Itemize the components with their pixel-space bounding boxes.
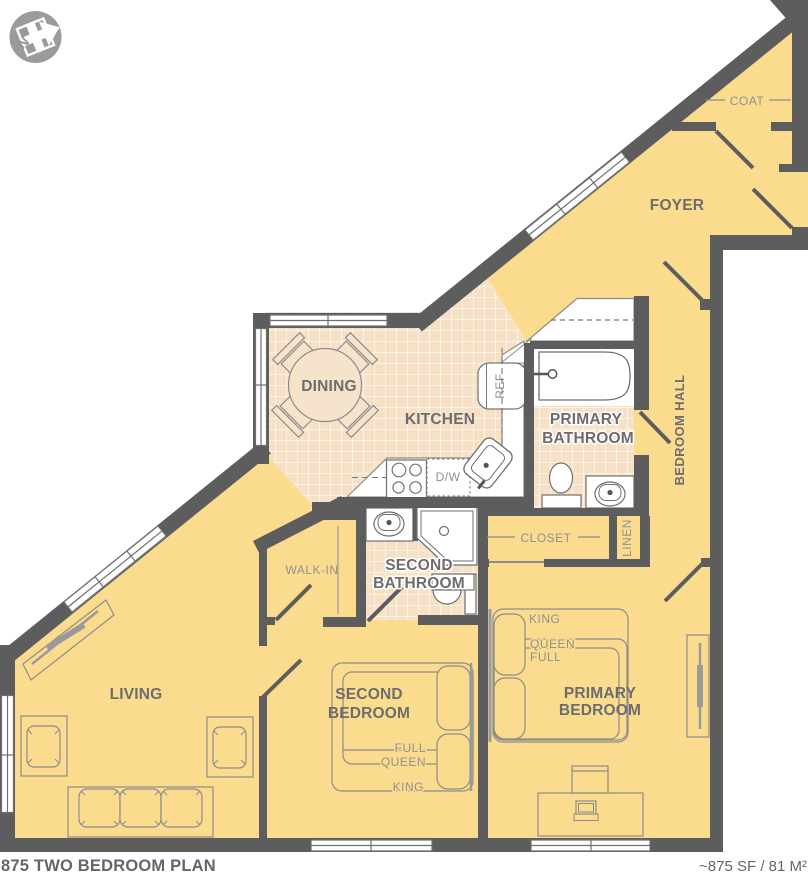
svg-text:KING: KING — [529, 612, 560, 626]
svg-text:~875 SF / 81 M²: ~875 SF / 81 M² — [699, 858, 807, 875]
svg-text:WALK-IN: WALK-IN — [285, 563, 338, 577]
svg-text:CLOSET: CLOSET — [520, 531, 571, 545]
svg-text:D/W: D/W — [436, 470, 461, 484]
svg-text:875 TWO BEDROOM PLAN: 875 TWO BEDROOM PLAN — [1, 857, 216, 875]
svg-text:SECOND: SECOND — [335, 686, 403, 703]
svg-text:QUEEN: QUEEN — [381, 755, 426, 769]
svg-text:BEDROOM HALL: BEDROOM HALL — [672, 375, 687, 486]
svg-text:PRIMARY: PRIMARY — [550, 411, 623, 428]
svg-text:FOYER: FOYER — [650, 197, 704, 214]
svg-text:PRIMARY: PRIMARY — [564, 685, 637, 702]
svg-text:LIVING: LIVING — [110, 686, 163, 703]
svg-text:LINEN: LINEN — [620, 519, 634, 557]
svg-text:FULL: FULL — [395, 741, 426, 755]
svg-text:BATHROOM: BATHROOM — [542, 430, 634, 447]
svg-text:QUEEN: QUEEN — [530, 637, 575, 651]
svg-text:BEDROOM: BEDROOM — [328, 705, 410, 722]
svg-text:REF: REF — [493, 373, 507, 399]
svg-text:BATHROOM: BATHROOM — [373, 575, 465, 592]
svg-text:DINING: DINING — [301, 378, 356, 395]
svg-text:FULL: FULL — [530, 650, 561, 664]
svg-text:SECOND: SECOND — [385, 557, 453, 574]
svg-text:COAT: COAT — [730, 94, 765, 108]
svg-text:BEDROOM: BEDROOM — [559, 702, 641, 719]
svg-text:KING: KING — [393, 780, 424, 794]
svg-text:KITCHEN: KITCHEN — [405, 411, 475, 428]
